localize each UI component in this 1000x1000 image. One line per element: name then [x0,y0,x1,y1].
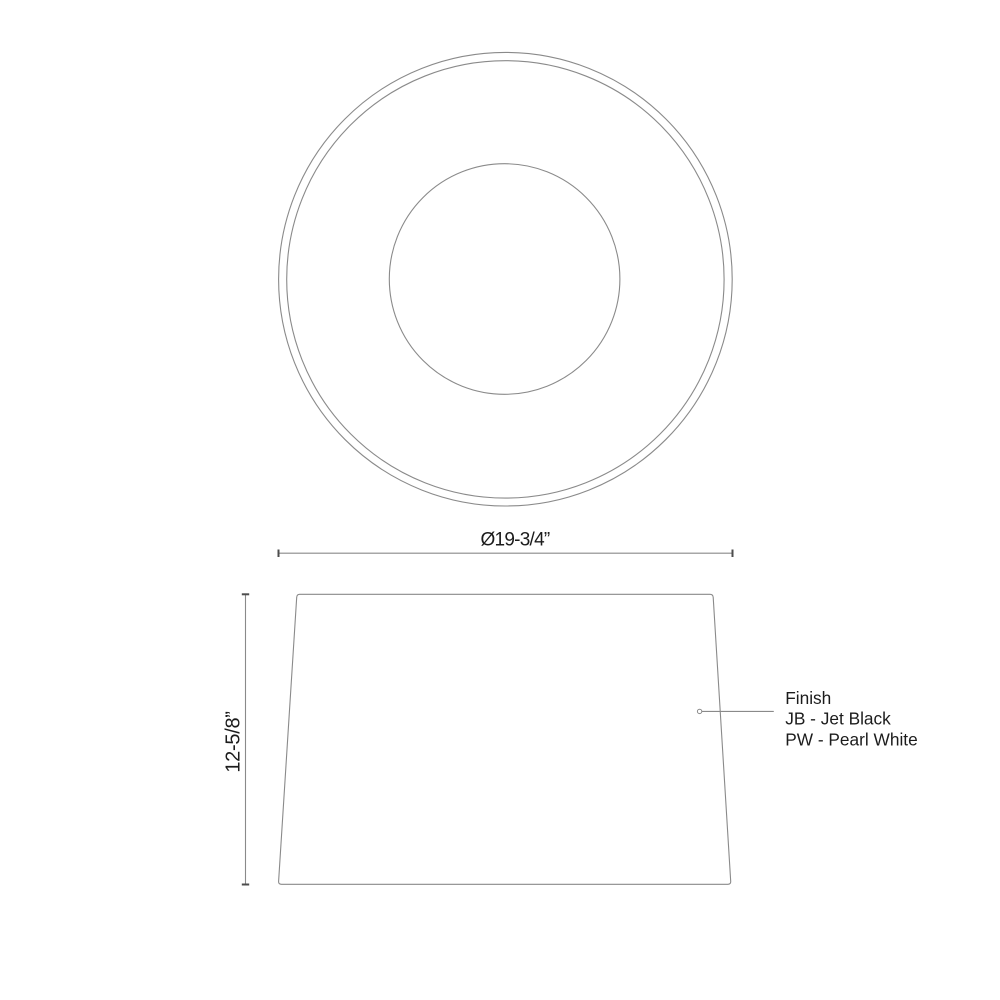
svg-text:PW - Pearl White: PW - Pearl White [785,729,918,749]
svg-text:Finish: Finish [785,688,831,708]
svg-text:JB - Jet Black: JB - Jet Black [785,709,891,729]
svg-text:Ø19-3/4”: Ø19-3/4” [481,530,550,551]
svg-text:12-5/8”: 12-5/8” [223,711,245,772]
